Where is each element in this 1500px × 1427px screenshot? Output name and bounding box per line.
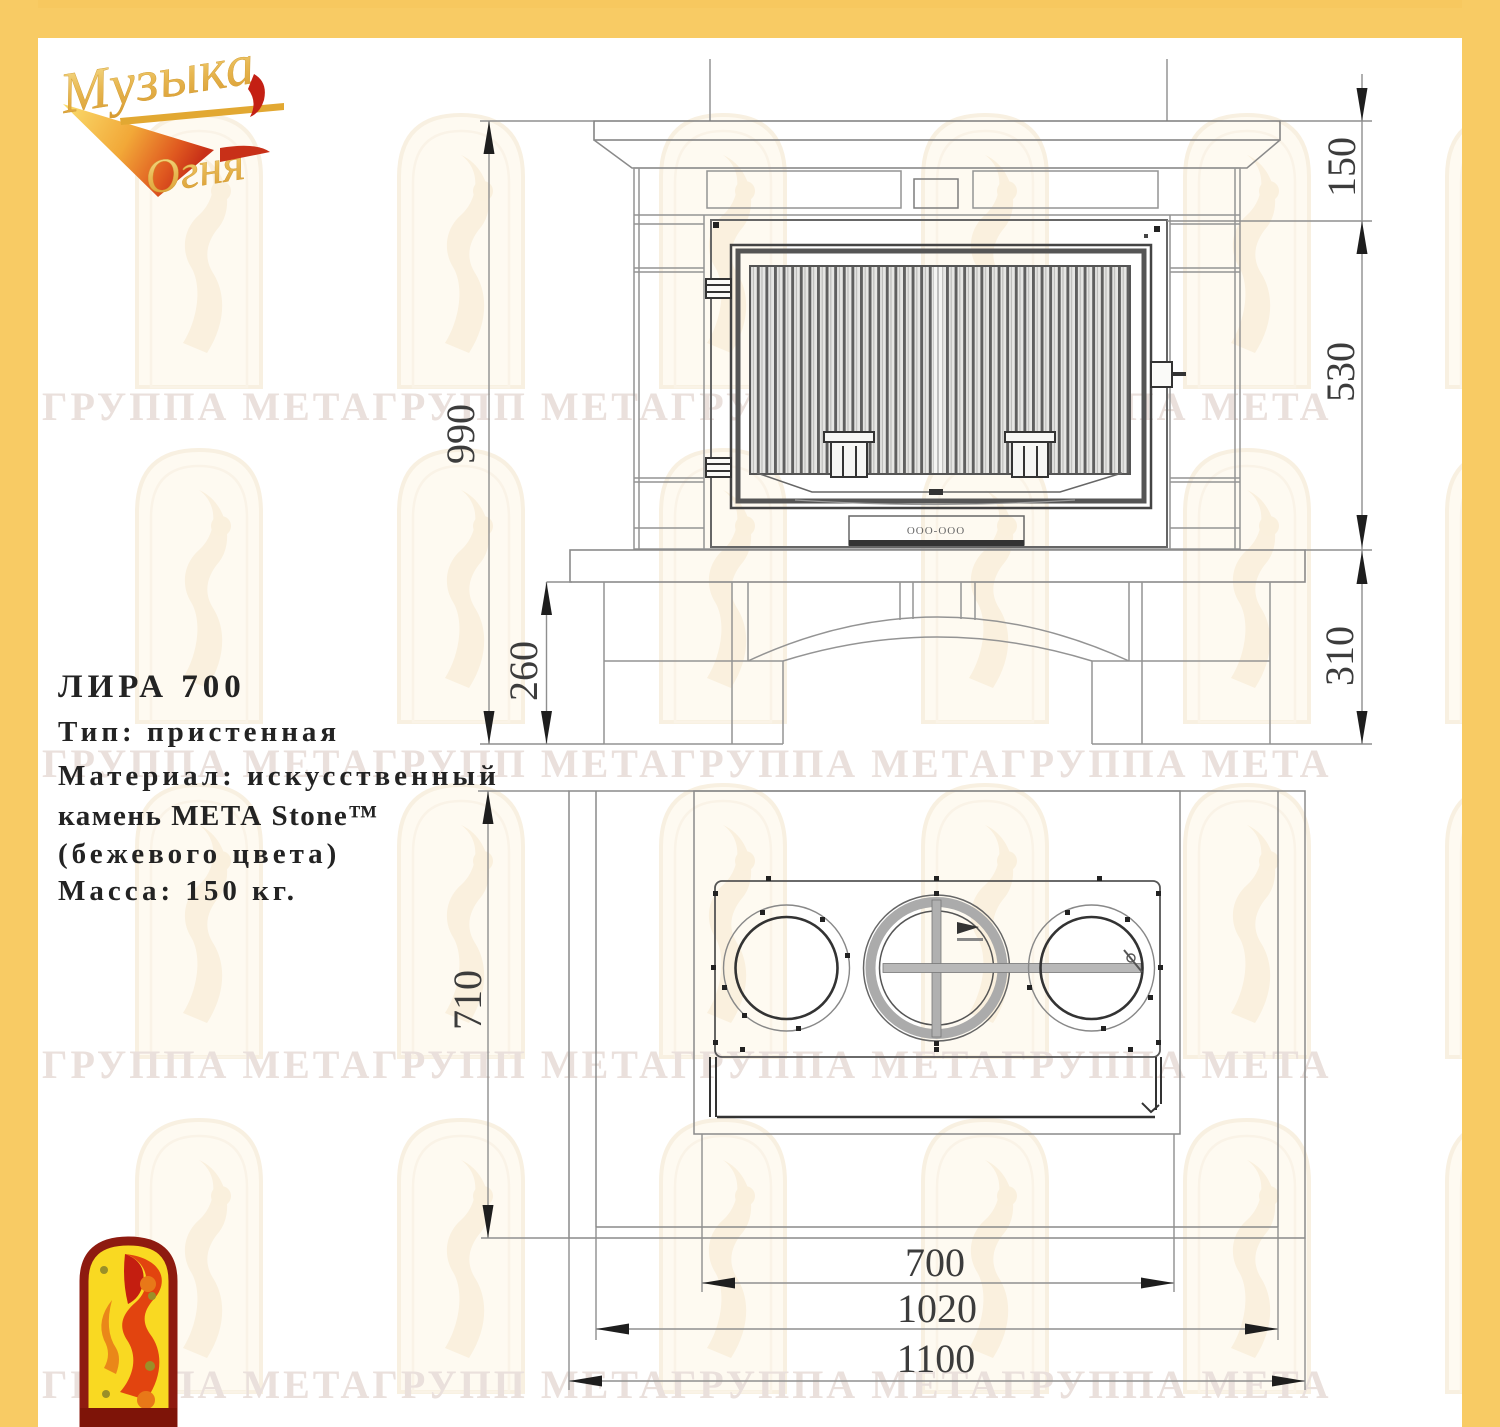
svg-text:1020: 1020 <box>897 1286 977 1331</box>
svg-text:Материал: искусственный: Материал: искусственный <box>58 760 500 792</box>
svg-text:ГРУППА МЕТАГРУПП МЕТАГРУППА М: ГРУППА МЕТАГРУПП МЕТАГРУППА МЕТАГРУППА М… <box>42 384 1332 429</box>
svg-text:Тип: пристенная: Тип: пристенная <box>58 716 340 748</box>
svg-text:530: 530 <box>1318 342 1363 402</box>
svg-text:990: 990 <box>438 404 483 464</box>
svg-text:150: 150 <box>1319 137 1364 197</box>
svg-text:ГРУППА МЕТАГРУПП МЕТАГРУППА М: ГРУППА МЕТАГРУПП МЕТАГРУППА МЕТАГРУППА М… <box>42 1042 1332 1087</box>
svg-text:260: 260 <box>501 641 546 701</box>
svg-text:(бежевого цвета): (бежевого цвета) <box>58 838 340 870</box>
svg-text:700: 700 <box>905 1240 965 1285</box>
svg-text:Масса: 150 кг.: Масса: 150 кг. <box>58 875 298 907</box>
svg-text:1100: 1100 <box>897 1336 976 1381</box>
svg-text:ЛИРА 700: ЛИРА 700 <box>58 669 246 705</box>
svg-text:310: 310 <box>1317 626 1362 686</box>
svg-text:ООО-ООО: ООО-ООО <box>907 525 965 537</box>
svg-text:ГРУППА МЕТАГРУПП МЕТАГРУППА М: ГРУППА МЕТАГРУПП МЕТАГРУППА МЕТАГРУППА М… <box>42 1362 1332 1407</box>
svg-text:камень МЕТА Stone™: камень МЕТА Stone™ <box>58 800 379 832</box>
svg-text:710: 710 <box>445 970 490 1030</box>
